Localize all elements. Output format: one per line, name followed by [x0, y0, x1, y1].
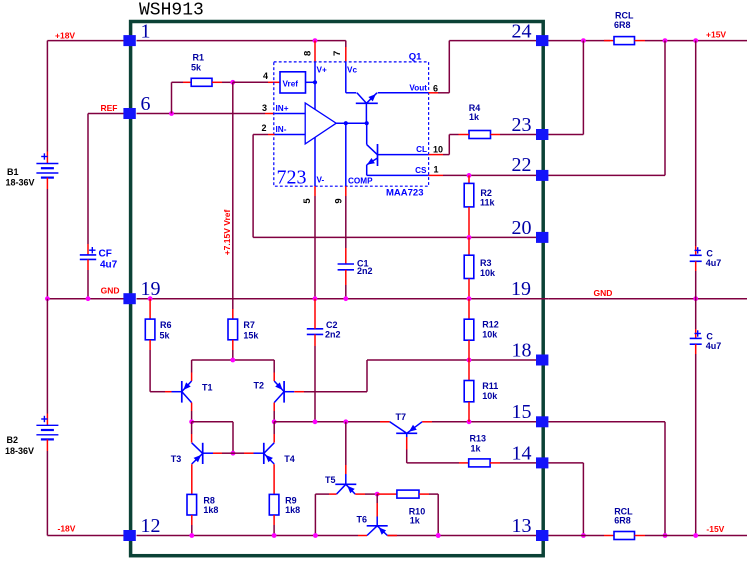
svg-text:T4: T4	[284, 454, 295, 464]
svg-text:+15V: +15V	[706, 30, 726, 40]
svg-text:11k: 11k	[480, 198, 496, 208]
svg-text:18: 18	[512, 340, 532, 362]
svg-text:12: 12	[141, 515, 161, 537]
svg-text:1k: 1k	[469, 112, 480, 122]
svg-text:T5: T5	[325, 475, 336, 485]
svg-text:1: 1	[433, 164, 438, 174]
svg-text:Vc: Vc	[347, 66, 357, 75]
svg-text:13: 13	[512, 515, 532, 537]
svg-text:R9: R9	[285, 496, 297, 506]
svg-text:Q1: Q1	[409, 51, 422, 62]
svg-text:22: 22	[512, 154, 532, 176]
svg-text:5k: 5k	[191, 63, 202, 73]
svg-text:19: 19	[511, 278, 531, 300]
svg-text:GND: GND	[101, 286, 120, 296]
svg-text:2n2: 2n2	[325, 330, 341, 340]
svg-text:1k8: 1k8	[285, 505, 300, 515]
svg-text:R12: R12	[482, 320, 499, 330]
svg-text:+18V: +18V	[55, 31, 75, 41]
svg-text:10k: 10k	[482, 330, 498, 340]
svg-text:WSH913: WSH913	[139, 1, 204, 21]
svg-text:1k: 1k	[471, 444, 482, 454]
svg-text:7: 7	[332, 51, 343, 56]
svg-text:CL: CL	[416, 145, 427, 154]
svg-text:23: 23	[512, 114, 532, 136]
svg-text:9: 9	[333, 198, 344, 203]
svg-text:4u7: 4u7	[100, 260, 118, 271]
svg-text:18-36V: 18-36V	[5, 446, 34, 456]
svg-text:CF: CF	[99, 249, 112, 260]
svg-text:B2: B2	[7, 435, 19, 445]
svg-text:V-: V-	[317, 175, 325, 184]
svg-text:5k: 5k	[160, 330, 171, 340]
svg-text:5: 5	[302, 198, 313, 204]
svg-text:1k8: 1k8	[203, 505, 218, 515]
svg-text:20: 20	[512, 217, 532, 239]
svg-text:-18V: -18V	[58, 524, 76, 534]
svg-text:19: 19	[141, 278, 161, 300]
svg-text:T1: T1	[202, 383, 213, 393]
svg-text:IN+: IN+	[276, 104, 289, 113]
svg-text:T7: T7	[396, 412, 407, 422]
svg-text:R8: R8	[203, 496, 215, 506]
svg-text:723: 723	[277, 167, 307, 189]
svg-text:6: 6	[141, 93, 151, 115]
svg-text:B1: B1	[7, 167, 19, 177]
svg-text:8: 8	[302, 51, 313, 56]
svg-text:C2: C2	[326, 320, 338, 330]
svg-text:10k: 10k	[480, 268, 496, 278]
svg-text:Vref: Vref	[283, 80, 299, 89]
svg-text:18-36V: 18-36V	[6, 178, 35, 188]
svg-text:C: C	[706, 332, 713, 342]
svg-text:14: 14	[512, 442, 532, 464]
svg-text:-15V: -15V	[706, 524, 724, 534]
svg-text:RCL: RCL	[615, 11, 634, 21]
svg-text:CS: CS	[415, 166, 427, 175]
svg-text:REF: REF	[101, 103, 118, 113]
svg-text:6: 6	[433, 84, 438, 94]
svg-text:R7: R7	[243, 320, 255, 330]
svg-text:R1: R1	[193, 53, 205, 63]
svg-text:R6: R6	[160, 320, 172, 330]
svg-text:4: 4	[263, 71, 268, 81]
svg-text:T3: T3	[171, 454, 182, 464]
svg-text:COMP: COMP	[348, 176, 373, 185]
svg-text:2: 2	[261, 123, 266, 133]
svg-text:15: 15	[512, 401, 532, 423]
svg-text:15k: 15k	[243, 330, 259, 340]
svg-text:T2: T2	[254, 380, 265, 390]
svg-text:4u7: 4u7	[706, 258, 722, 268]
svg-text:24: 24	[512, 21, 532, 43]
svg-text:C: C	[706, 249, 713, 259]
svg-text:3: 3	[262, 103, 267, 113]
svg-text:R3: R3	[480, 258, 492, 268]
svg-text:T6: T6	[357, 515, 368, 525]
svg-text:6R8: 6R8	[614, 516, 631, 526]
svg-text:R13: R13	[470, 434, 487, 444]
svg-text:IN-: IN-	[276, 125, 287, 134]
svg-text:4u7: 4u7	[706, 341, 722, 351]
svg-text:+7.15V Vref: +7.15V Vref	[222, 210, 232, 256]
svg-text:10: 10	[433, 144, 443, 154]
svg-text:1k: 1k	[410, 516, 421, 526]
svg-text:2n2: 2n2	[357, 266, 373, 276]
svg-text:10k: 10k	[482, 391, 498, 401]
svg-text:R11: R11	[482, 381, 498, 391]
svg-text:1: 1	[141, 20, 151, 42]
svg-text:MAA723: MAA723	[386, 188, 424, 199]
svg-text:V+: V+	[317, 66, 327, 75]
svg-text:6R8: 6R8	[614, 20, 631, 30]
svg-text:GND: GND	[594, 288, 613, 298]
svg-text:Vout: Vout	[409, 84, 427, 93]
svg-text:R2: R2	[480, 188, 492, 198]
